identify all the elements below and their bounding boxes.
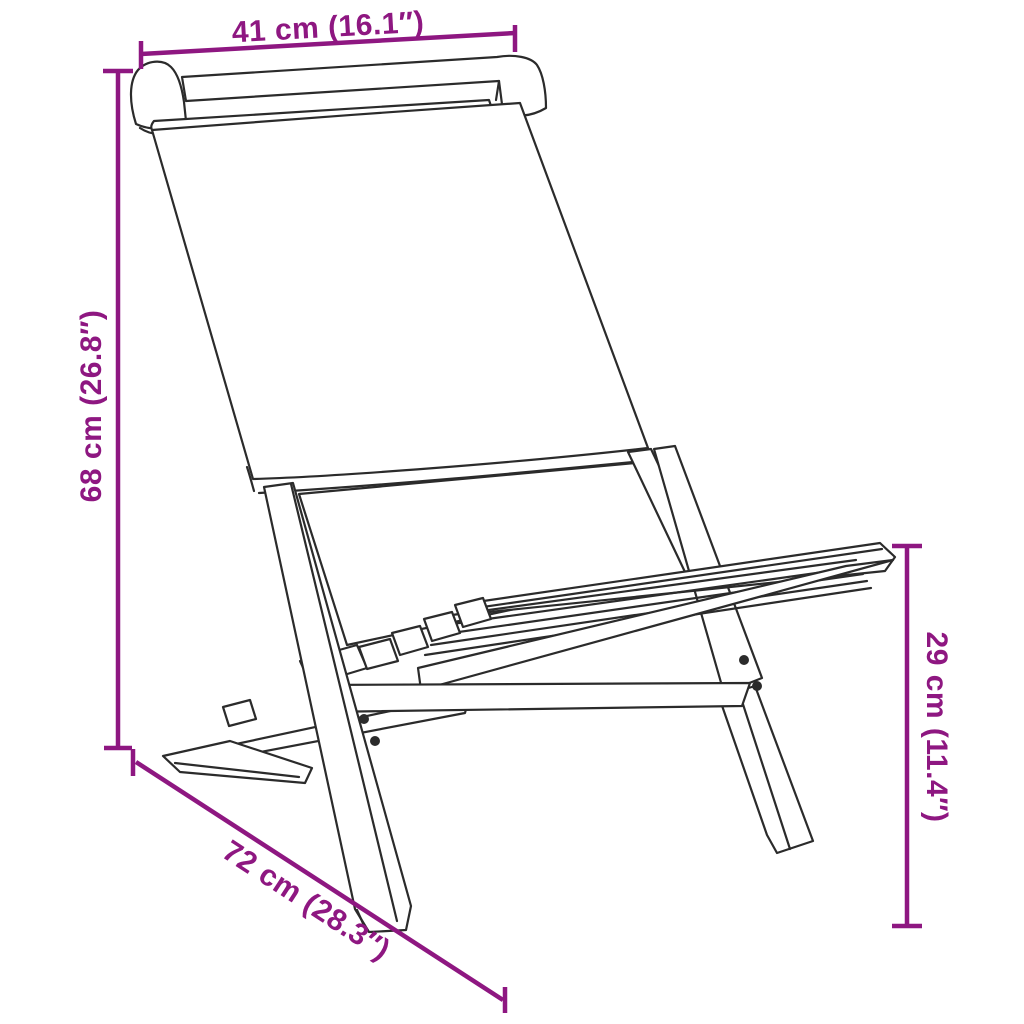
backrest-fabric: [152, 103, 692, 645]
left-height-dimension-label: 68 cm (26.8″): [75, 310, 109, 503]
bottom-depth-dimension-line: [133, 749, 505, 1013]
chair-illustration: [0, 0, 1024, 1024]
product-dimension-diagram: 41 cm (16.1″) 68 cm (26.8″) 72 cm (28.3″…: [0, 0, 1024, 1024]
right-seat-height-dimension-line: [892, 546, 922, 926]
rear-right-leg: [719, 686, 813, 853]
right-seat-height-dimension-label: 29 cm (11.4″): [919, 632, 953, 823]
